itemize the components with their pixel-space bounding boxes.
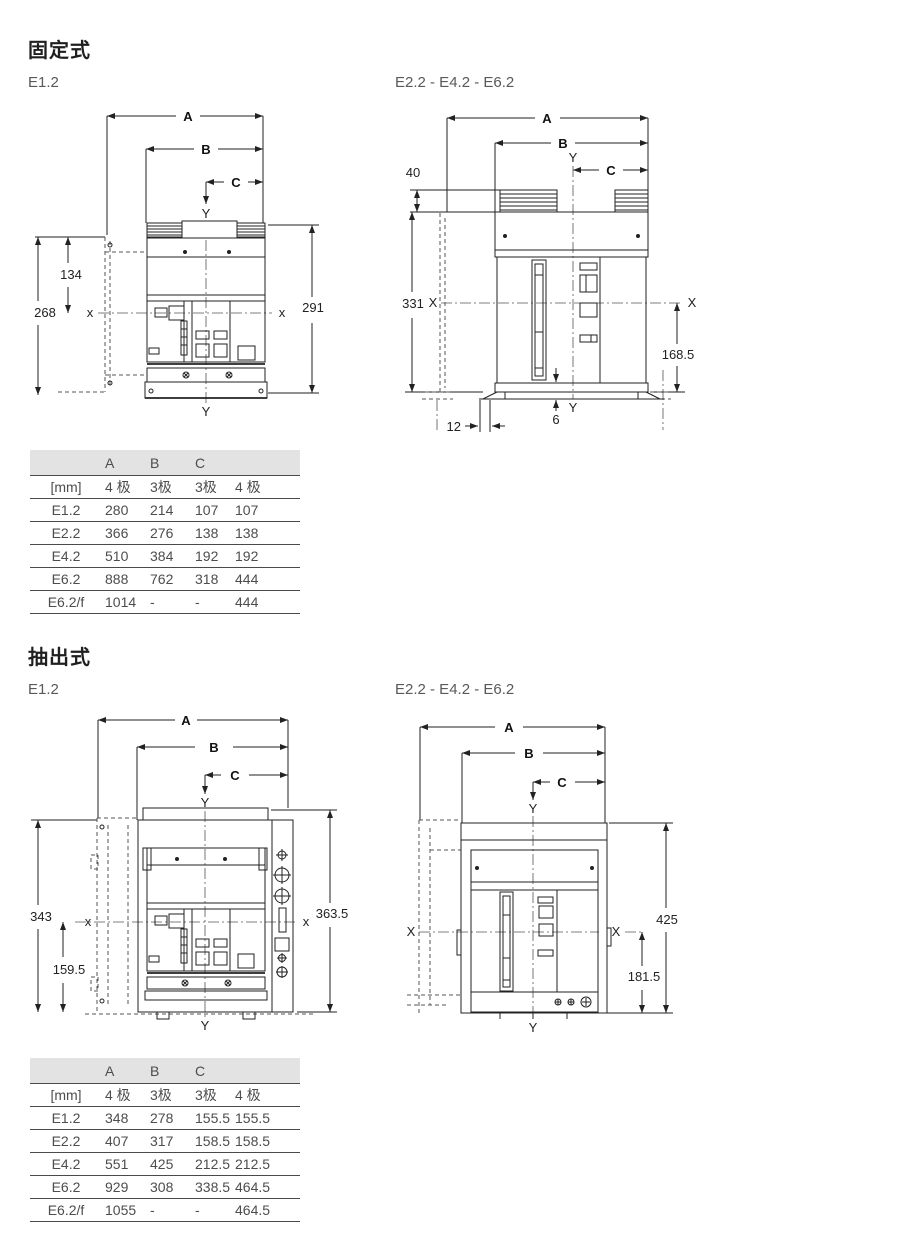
cell: 366 <box>102 525 147 541</box>
row-label: E6.2 <box>30 571 102 587</box>
cell: 107 <box>232 502 300 518</box>
dim-value-6: 6 <box>552 412 559 427</box>
cell: - <box>147 594 192 610</box>
table-row: E1.2 348 278 155.5 155.5 <box>30 1107 300 1130</box>
cell: 425 <box>147 1156 192 1172</box>
phantom-door-outline <box>85 818 315 1014</box>
cell: 444 <box>232 571 300 587</box>
axis-label-x-right: X <box>688 295 697 310</box>
cell: 107 <box>192 502 232 518</box>
drawing-fixed-e12: A B C Y Y x x 268 134 291 <box>30 105 340 419</box>
cradle-and-breaker-side-view <box>457 823 611 1019</box>
pole-cell: 3极 <box>192 1085 232 1105</box>
cell: 551 <box>102 1156 147 1172</box>
cell: 318 <box>192 571 232 587</box>
dim-label-a: A <box>504 720 514 735</box>
table-row: E4.2 551 425 212.5 212.5 <box>30 1153 300 1176</box>
cell: 384 <box>147 548 192 564</box>
dim-value-343: 343 <box>30 909 52 924</box>
header-cell-a: A <box>102 1063 147 1079</box>
cell: 510 <box>102 548 147 564</box>
row-label: E6.2 <box>30 1179 102 1195</box>
axis-label-x-right: X <box>612 924 621 939</box>
drawing-withdrawable-e22: A B C Y Y X X 425 181.5 <box>395 700 710 1045</box>
axis-label-y-top: Y <box>202 206 211 221</box>
variant-label-wd-e22: E2.2 - E4.2 - E6.2 <box>395 681 514 698</box>
dim-value-363-5: 363.5 <box>316 906 349 921</box>
dim-value-181-5: 181.5 <box>628 969 661 984</box>
dim-label-b: B <box>209 740 218 755</box>
accessory-panel <box>273 849 291 978</box>
dim-label-c: C <box>231 175 241 190</box>
row-label: E6.2/f <box>30 1202 102 1218</box>
row-label: E4.2 <box>30 548 102 564</box>
cell: 308 <box>147 1179 192 1195</box>
phantom-door-outline <box>407 820 461 1013</box>
axis-label-y-bottom: Y <box>202 404 211 419</box>
section-title-withdrawable: 抽出式 <box>28 641 91 670</box>
dim-value-12: 12 <box>447 419 461 434</box>
pole-cell: 4 极 <box>102 1085 147 1105</box>
dim-label-b: B <box>524 746 533 761</box>
table-row: E2.2 407 317 158.5 158.5 <box>30 1130 300 1153</box>
cell: 158.5 <box>192 1133 232 1149</box>
table-row: E6.2 888 762 318 444 <box>30 568 300 591</box>
dim-label-c: C <box>230 768 240 783</box>
breaker-side-view <box>479 190 664 399</box>
dim-label-a: A <box>542 111 552 126</box>
drawing-withdrawable-e12: A B C Y Y x x 343 159.5 363.5 <box>25 705 355 1037</box>
variant-label-fixed-e12: E1.2 <box>28 74 59 91</box>
section-title-fixed: 固定式 <box>28 34 91 63</box>
cell: - <box>192 1202 232 1218</box>
cell: 464.5 <box>232 1202 300 1218</box>
table-row: E4.2 510 384 192 192 <box>30 545 300 568</box>
cell: 280 <box>102 502 147 518</box>
variant-label-fixed-e22: E2.2 - E4.2 - E6.2 <box>395 74 514 91</box>
axis-label-x-left: X <box>407 924 416 939</box>
axis-label-x-left: X <box>429 295 438 310</box>
cell: 278 <box>147 1110 192 1126</box>
header-cell-b: B <box>147 1063 192 1079</box>
dimension-lines <box>405 118 685 432</box>
cell: 317 <box>147 1133 192 1149</box>
axis-label-y-bottom: Y <box>201 1018 210 1033</box>
dimension-lines <box>35 116 319 403</box>
table-header-row: A B C <box>30 1058 300 1084</box>
table-header-row: A B C <box>30 450 300 476</box>
cell: 212.5 <box>192 1156 232 1172</box>
dim-value-291: 291 <box>302 300 324 315</box>
phantom-outline <box>105 237 147 392</box>
drawing-fixed-e22: A B C Y Y X X 40 331 168.5 6 12 <box>395 100 710 436</box>
dim-value-134: 134 <box>60 267 82 282</box>
dim-label-b: B <box>201 142 210 157</box>
pole-cell: 3极 <box>147 1085 192 1105</box>
row-label: E2.2 <box>30 1133 102 1149</box>
cell: 155.5 <box>232 1110 300 1126</box>
cell: 276 <box>147 525 192 541</box>
table-row: E6.2 929 308 338.5 464.5 <box>30 1176 300 1199</box>
table-row: E2.2 366 276 138 138 <box>30 522 300 545</box>
cell: 348 <box>102 1110 147 1126</box>
pole-cell: 3极 <box>192 477 232 497</box>
unit-cell: [mm] <box>30 1087 102 1103</box>
unit-cell: [mm] <box>30 479 102 495</box>
dim-label-c: C <box>557 775 567 790</box>
axis-label-x-right: x <box>303 914 310 929</box>
cell: 138 <box>192 525 232 541</box>
cell: 338.5 <box>192 1179 232 1195</box>
axis-label-y-top: Y <box>529 801 538 816</box>
dim-value-268: 268 <box>34 305 56 320</box>
axis-label-x-right: x <box>279 305 286 320</box>
dim-value-168-5: 168.5 <box>662 347 695 362</box>
fixed-dimension-table: A B C [mm] 4 极 3极 3极 4 极 E1.2 280 214 10… <box>30 450 300 614</box>
table-row: E1.2 280 214 107 107 <box>30 499 300 522</box>
cell: 158.5 <box>232 1133 300 1149</box>
table-subheader-row: [mm] 4 极 3极 3极 4 极 <box>30 476 300 499</box>
cradle-and-breaker-front-view <box>138 808 293 1019</box>
catalog-page: 固定式 E1.2 E2.2 - E4.2 - E6.2 <box>0 0 900 1258</box>
header-cell-a: A <box>102 455 147 471</box>
axis-label-y-top: Y <box>569 150 578 165</box>
dim-value-40: 40 <box>406 165 420 180</box>
header-cell-b: B <box>147 455 192 471</box>
cell: 762 <box>147 571 192 587</box>
table-row: E6.2/f 1055 - - 464.5 <box>30 1199 300 1222</box>
axis-label-y-bottom: Y <box>529 1020 538 1035</box>
header-cell-c: C <box>192 455 232 471</box>
cell: 1014 <box>102 594 147 610</box>
axis-label-x-left: x <box>85 914 92 929</box>
dim-label-b: B <box>558 136 567 151</box>
cell: 214 <box>147 502 192 518</box>
table-row: E6.2/f 1014 - - 444 <box>30 591 300 614</box>
cell: - <box>192 594 232 610</box>
cell: 138 <box>232 525 300 541</box>
dim-value-425: 425 <box>656 912 678 927</box>
row-label: E6.2/f <box>30 594 102 610</box>
pole-cell: 4 极 <box>232 477 300 497</box>
axis-label-x-left: x <box>87 305 94 320</box>
pole-cell: 3极 <box>147 477 192 497</box>
row-label: E1.2 <box>30 1110 102 1126</box>
variant-label-wd-e12: E1.2 <box>28 681 59 698</box>
axis-label-y-top: Y <box>201 795 210 810</box>
row-label: E2.2 <box>30 525 102 541</box>
dim-value-331: 331 <box>402 296 424 311</box>
withdrawable-dimension-table: A B C [mm] 4 极 3极 3极 4 极 E1.2 348 278 15… <box>30 1058 300 1222</box>
cell: 929 <box>102 1179 147 1195</box>
dim-label-c: C <box>606 163 616 178</box>
cell: 888 <box>102 571 147 587</box>
cell: - <box>147 1202 192 1218</box>
axis-label-y-bottom: Y <box>569 400 578 415</box>
row-label: E1.2 <box>30 502 102 518</box>
dim-label-a: A <box>181 713 191 728</box>
cell: 192 <box>232 548 300 564</box>
table-subheader-row: [mm] 4 极 3极 3极 4 极 <box>30 1084 300 1107</box>
cell: 1055 <box>102 1202 147 1218</box>
dim-label-a: A <box>183 109 193 124</box>
dim-value-159-5: 159.5 <box>53 962 86 977</box>
header-cell-c: C <box>192 1063 232 1079</box>
cell: 407 <box>102 1133 147 1149</box>
pole-cell: 4 极 <box>102 477 147 497</box>
cell: 192 <box>192 548 232 564</box>
cell: 155.5 <box>192 1110 232 1126</box>
row-label: E4.2 <box>30 1156 102 1172</box>
cell: 464.5 <box>232 1179 300 1195</box>
cell: 212.5 <box>232 1156 300 1172</box>
pole-cell: 4 极 <box>232 1085 300 1105</box>
cell: 444 <box>232 594 300 610</box>
